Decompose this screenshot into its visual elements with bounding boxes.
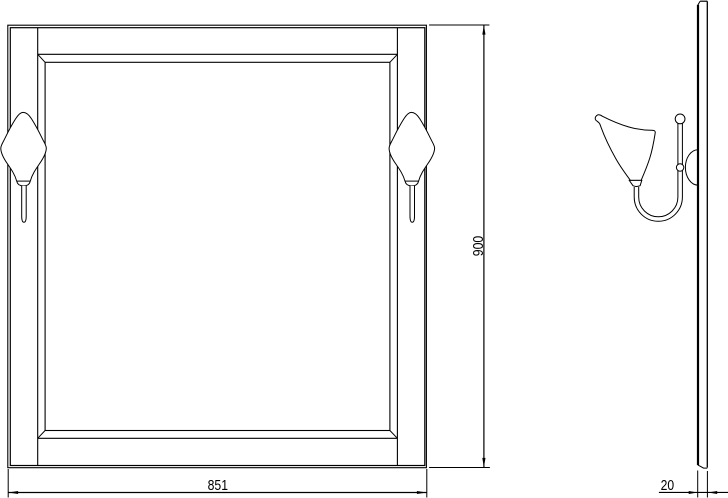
svg-text:851: 851 [208, 478, 228, 494]
svg-text:900: 900 [471, 236, 487, 256]
svg-text:20: 20 [661, 478, 675, 494]
